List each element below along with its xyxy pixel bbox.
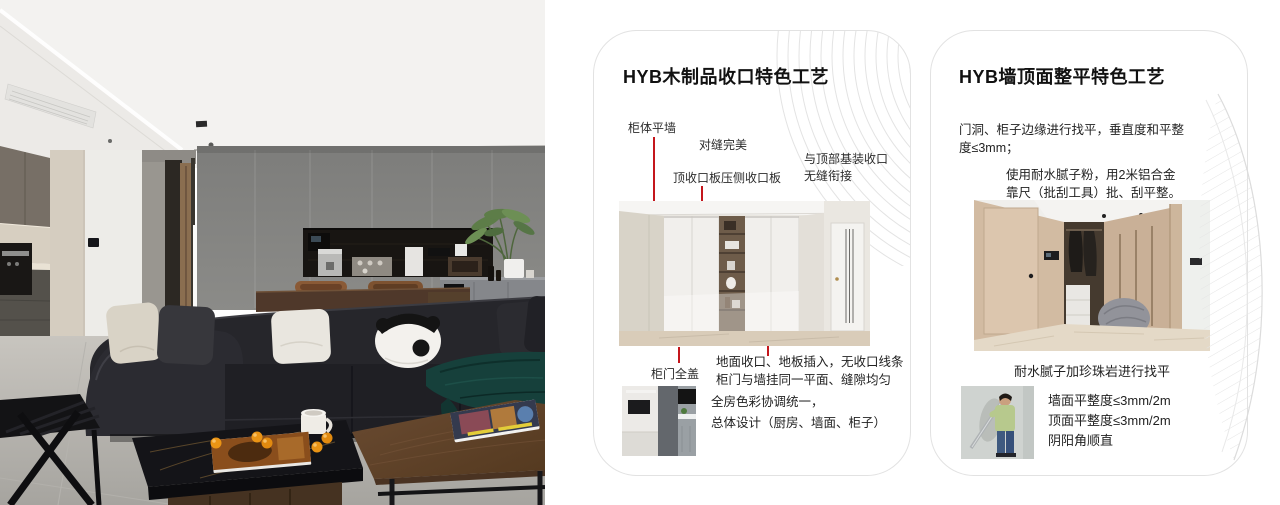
spec-corners-straight: 阴阳角顺直 [1048, 431, 1113, 451]
para-edges-line1: 门洞、柜子边缘进行找平，垂直度和平整 [959, 121, 1184, 139]
kitchen-nook [0, 146, 85, 342]
card-wood-finish: HYB木制品收口特色工艺 柜体平墙 对缝完美 顶收口板压侧收口板 与顶部基装收口… [593, 30, 911, 476]
annotation-line-door [678, 347, 680, 363]
cup-rack [352, 257, 392, 276]
gray-cabinet-column [658, 386, 678, 456]
card-wall-leveling: HYB墙顶面整平特色工艺 门洞、柜子边缘进行找平，垂直度和平整 度≤3mm； 使… [930, 30, 1248, 476]
note-floor-closure: 地面收口、地板插入，无收口线条 柜门与墙挂同一平面、缝隙均匀 [716, 353, 904, 389]
label-perfect-seam: 对缝完美 [699, 136, 747, 153]
worker-thumbnail [961, 386, 1034, 459]
white-door [831, 223, 864, 331]
para-putty-line1: 使用耐水腻子粉，用2米铝合金 [1006, 166, 1181, 184]
tv-screen [628, 400, 650, 414]
coffee-machine [0, 243, 32, 295]
wood-floor [619, 331, 870, 346]
label-ceiling-joint-line2: 无缝衔接 [804, 168, 888, 185]
label-full-overlay-door: 柜门全盖 [651, 365, 699, 382]
label-top-closure-board: 顶收口板压侧收口板 [673, 169, 781, 186]
page: HYB木制品收口特色工艺 柜体平墙 对缝完美 顶收口板压侧收口板 与顶部基装收口… [0, 0, 1280, 505]
para-putty-method: 使用耐水腻子粉，用2米铝合金 靠尺（批刮工具）批、刮平整。 [1006, 166, 1181, 202]
wardrobe-image [619, 201, 870, 346]
para-edges-leveling: 门洞、柜子边缘进行找平，垂直度和平整 度≤3mm； [959, 121, 1184, 157]
label-ceiling-joint: 与顶部基装收口 无缝衔接 [804, 151, 888, 185]
caption-perlite-putty: 耐水腻子加珍珠岩进行找平 [974, 361, 1210, 380]
note-color-scheme-1: 全房色彩协调统一， [711, 393, 824, 411]
wall-switch [88, 238, 99, 247]
niche-shelf [303, 228, 493, 277]
ceiling-fixture [196, 121, 207, 128]
spec-ceiling-flatness: 顶面平整度≤3mm/2m [1048, 411, 1171, 431]
white-machine [405, 247, 423, 276]
note-color-scheme-2: 总体设计（厨房、墙面、柜子） [711, 414, 886, 432]
spec-wall-flatness: 墙面平整度≤3mm/2m [1048, 391, 1171, 411]
kitchen-thumbnail [622, 386, 696, 456]
plant-pot [504, 259, 524, 278]
note-floor-line2: 柜门与墙挂同一平面、缝隙均匀 [716, 371, 904, 389]
card2-title: HYB墙顶面整平特色工艺 [959, 63, 1165, 89]
living-room-illustration [0, 0, 545, 505]
para-edges-line2: 度≤3mm； [959, 139, 1184, 157]
left-wall [619, 211, 664, 346]
card1-title: HYB木制品收口特色工艺 [623, 63, 829, 89]
label-cabinet-flush-wall: 柜体平墙 [628, 119, 676, 136]
living-room-photo [0, 0, 545, 505]
wood-door [984, 208, 1038, 334]
label-ceiling-joint-line1: 与顶部基装收口 [804, 151, 888, 168]
note-floor-line1: 地面收口、地板插入，无收口线条 [716, 353, 904, 371]
panda-plush [375, 314, 441, 368]
hallway-image [974, 200, 1210, 351]
hanging-clothes [1069, 231, 1083, 272]
